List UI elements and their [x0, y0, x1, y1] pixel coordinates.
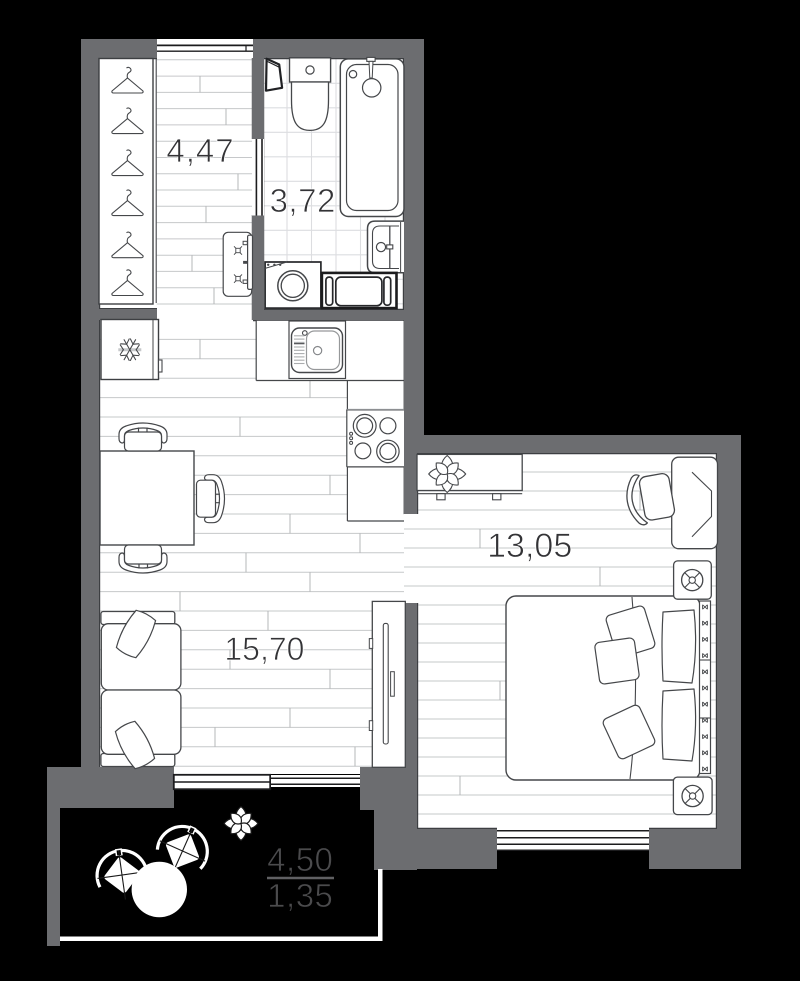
svg-text:4,50: 4,50 — [267, 841, 333, 878]
svg-text:3,72: 3,72 — [270, 182, 336, 219]
svg-text:13,05: 13,05 — [487, 527, 572, 565]
svg-text:1,35: 1,35 — [267, 877, 333, 914]
svg-text:15,70: 15,70 — [224, 631, 304, 667]
svg-text:4,47: 4,47 — [166, 132, 234, 169]
